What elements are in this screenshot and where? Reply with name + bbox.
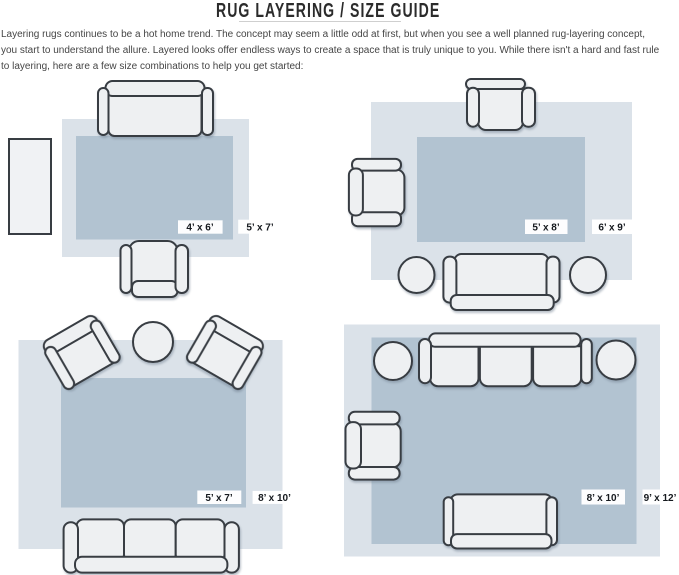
svg-text:8’ x 10’: 8’ x 10’	[258, 493, 291, 504]
svg-text:8’ x 10’: 8’ x 10’	[587, 493, 620, 504]
svg-text:5’ x 7’: 5’ x 7’	[205, 493, 232, 504]
svg-text:5’ x 8’: 5’ x 8’	[532, 223, 559, 234]
svg-text:6’ x 9’: 6’ x 9’	[598, 223, 625, 234]
svg-text:9’ x 12’: 9’ x 12’	[644, 493, 677, 504]
svg-text:4’ x 6’: 4’ x 6’	[186, 223, 213, 234]
svg-text:5’ x 7’: 5’ x 7’	[246, 223, 273, 234]
